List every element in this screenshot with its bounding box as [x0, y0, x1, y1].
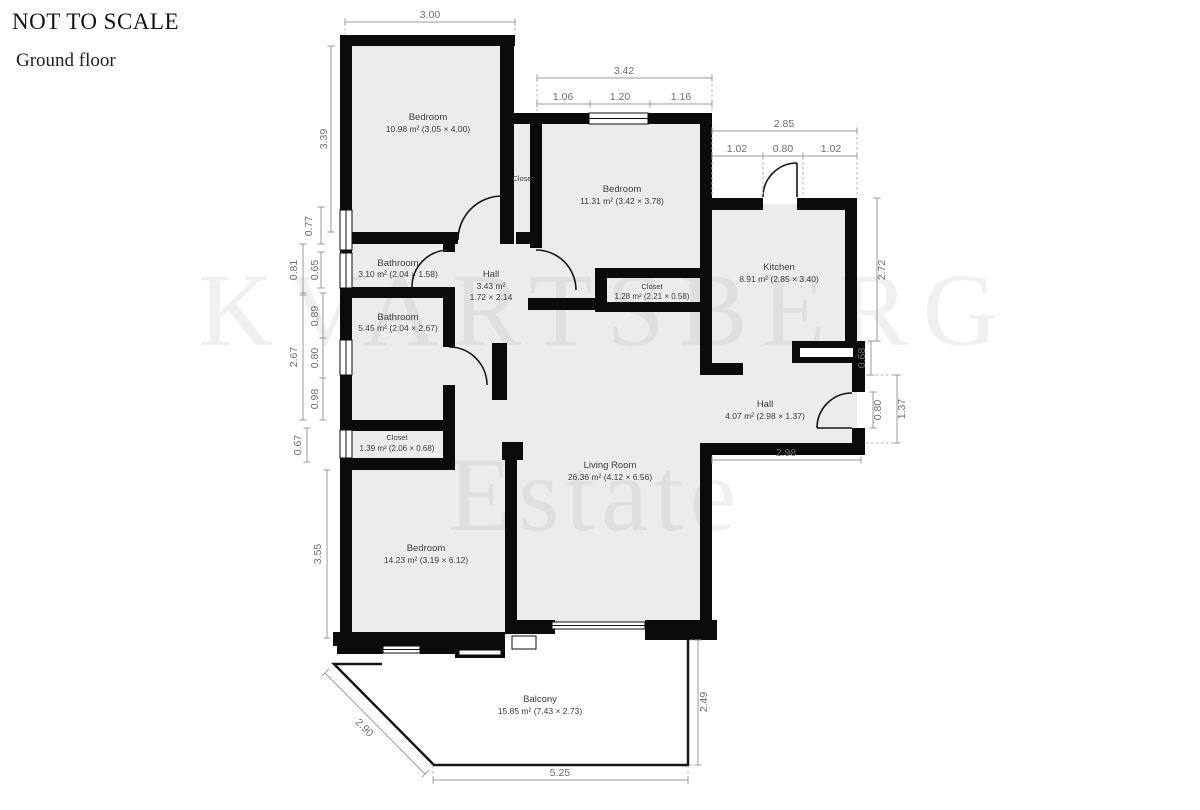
dim-left-077: 0.77 — [303, 216, 315, 237]
wall-segment — [443, 287, 455, 347]
balcony-dims: 15.85 m² (7.43 × 2.73) — [498, 706, 583, 716]
kitchen-wall-notch — [800, 348, 853, 357]
dim-left-065: 0.65 — [309, 260, 321, 281]
living-name: Living Room — [584, 460, 637, 471]
wall-segment — [340, 458, 455, 470]
wall-segment — [340, 35, 515, 46]
wall-segment — [595, 302, 712, 312]
dim-right-door: 0.80 — [872, 400, 884, 421]
dim-left-081: 0.81 — [288, 260, 300, 281]
bathroom1-name: Bathroom — [377, 258, 418, 269]
wall-segment — [845, 198, 857, 341]
wall-segment — [492, 343, 507, 400]
wall-segment — [500, 35, 514, 244]
dim-left-089: 0.89 — [309, 306, 321, 327]
wall-segment — [505, 620, 555, 634]
closet-left-name: Closet — [386, 433, 408, 442]
bedroom3-dims: 14.23 m² (3.19 × 6.12) — [384, 555, 469, 565]
wall-segment — [852, 428, 865, 443]
bedroom2-dims: 11.31 m² (3.42 × 3.78) — [580, 196, 664, 206]
window — [459, 650, 501, 655]
wall-segment — [700, 113, 712, 375]
bathroom2-dims: 5.45 m² (2.04 × 2.67) — [358, 323, 438, 333]
wall-segment — [502, 442, 523, 460]
wall-segment — [340, 420, 452, 431]
dim-top-bedroom2-a: 1.06 — [553, 91, 574, 103]
kitchen-name: Kitchen — [763, 262, 795, 273]
bedroom2-name: Bedroom — [603, 184, 642, 195]
hall1-size: 1.72 × 2.14 — [470, 292, 513, 302]
wall-segment — [420, 646, 458, 654]
closet-left-dims: 1.39 m² (2.06 × 0.68) — [360, 444, 435, 453]
bedroom3-name: Bedroom — [407, 543, 446, 554]
wall-segment — [340, 232, 458, 244]
dim-balcony-right: 2.49 — [698, 692, 710, 713]
balcony-name: Balcony — [523, 694, 557, 705]
dim-top-kitchen-b: 0.80 — [773, 143, 794, 155]
bathroom2-name: Bathroom — [377, 312, 418, 323]
dim-top-kitchen-c: 1.02 — [821, 143, 842, 155]
dim-line — [304, 428, 311, 462]
wall-segment — [712, 198, 763, 210]
dim-top-bedroom2-total: 3.42 — [614, 65, 635, 77]
wall-segment — [595, 268, 712, 278]
wall-segment — [700, 363, 743, 375]
floorplan-drawing: KVARTSBERG Estate — [0, 0, 1200, 810]
dim-left-098: 0.98 — [309, 389, 321, 410]
dim-balcony-bottom: 5.25 — [550, 767, 571, 779]
hall2-dims: 4.07 m² (2.98 × 1.37) — [725, 411, 805, 421]
dim-right-hall: 1.37 — [896, 399, 908, 420]
wall-segment — [337, 646, 383, 654]
bedroom1-floor — [346, 40, 511, 240]
wall-segment — [340, 288, 352, 340]
dim-top-bedroom1: 3.00 — [420, 9, 441, 21]
kitchen-dims: 8.91 m² (2.85 × 3.40) — [739, 274, 819, 284]
header: NOT TO SCALE Ground floor — [12, 9, 179, 71]
wall-segment — [595, 268, 607, 312]
wall-segment — [645, 620, 717, 640]
watermark-line2: Estate — [448, 436, 743, 553]
dim-right-kitchen: 2.72 — [876, 260, 888, 281]
wall-segment — [340, 35, 352, 210]
bathroom1-dims: 3.10 m² (2.04 × 1.58) — [358, 269, 438, 279]
page-subtitle: Ground floor — [16, 50, 116, 71]
closet-mid-dims: 1.28 m² (2.21 × 0.58) — [615, 292, 690, 301]
floorplan-page: KVARTSBERG Estate — [0, 0, 1200, 810]
dim-top-kitchen-a: 1.02 — [727, 143, 748, 155]
dim-top-bedroom2-b: 1.20 — [610, 91, 631, 103]
hall1-name: Hall — [483, 269, 499, 280]
dim-balcony-diag: 2.90 — [353, 716, 376, 739]
page-title: NOT TO SCALE — [12, 9, 179, 34]
bedroom1-dims: 10.98 m² (3.05 × 4.00) — [386, 124, 471, 134]
dim-top-bedroom2-c: 1.16 — [671, 91, 692, 103]
bedroom1-name: Bedroom — [409, 112, 448, 123]
kitchen-door-arc — [763, 163, 797, 197]
wall-segment — [530, 124, 542, 248]
wall-segment — [340, 287, 455, 298]
dim-right-068: 0.68 — [856, 348, 868, 369]
dim-left-bedroom1: 3.39 — [318, 129, 330, 150]
wall-segment — [333, 632, 505, 646]
balcony-outline — [334, 640, 688, 765]
dim-left-bedroom3: 3.55 — [312, 544, 324, 565]
hall2-name: Hall — [757, 399, 773, 410]
wall-segment — [340, 458, 352, 632]
wall-segment — [505, 458, 517, 632]
wall-segment — [512, 113, 590, 124]
dim-line — [324, 470, 331, 638]
hall1-area: 3.43 m² — [477, 281, 506, 291]
closet-top-name: Closet — [512, 174, 534, 183]
dim-left-080: 0.80 — [309, 348, 321, 369]
dim-right-298: 2.98 — [776, 447, 797, 459]
dim-line — [322, 669, 429, 777]
dim-top-kitchen-total: 2.85 — [774, 118, 795, 130]
wall-segment — [340, 375, 352, 430]
living-dims: 26.36 m² (4.12 × 6.56) — [568, 472, 653, 482]
dim-left-267: 2.67 — [288, 347, 300, 368]
pillar-box — [512, 636, 536, 649]
dim-left-067: 0.67 — [292, 435, 304, 456]
wall-segment — [528, 298, 602, 310]
dim-line — [318, 207, 325, 244]
wall-segment — [700, 455, 712, 625]
closet-mid-name: Closet — [641, 282, 663, 291]
